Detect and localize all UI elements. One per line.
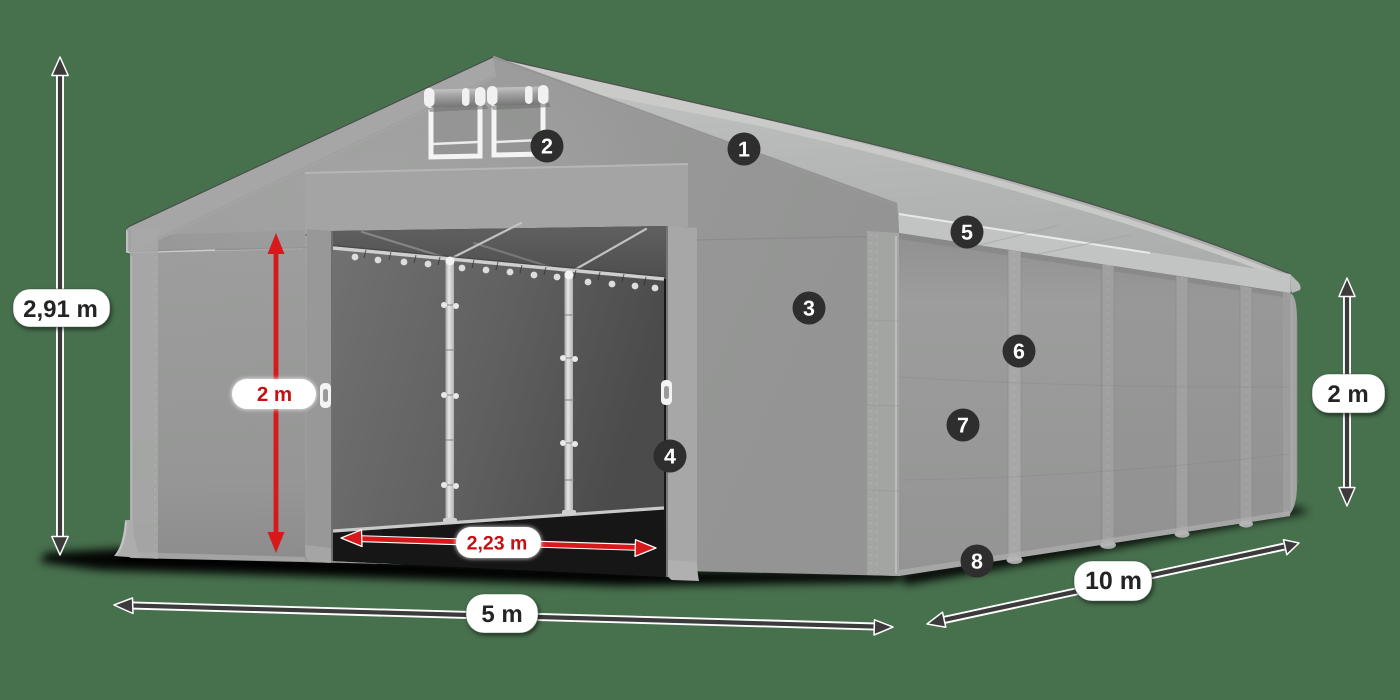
svg-text:3: 3 xyxy=(803,297,815,321)
svg-text:5: 5 xyxy=(961,221,973,245)
svg-text:2 m: 2 m xyxy=(1327,381,1368,408)
svg-text:2 m: 2 m xyxy=(257,383,292,406)
svg-text:2: 2 xyxy=(541,135,553,159)
svg-text:7: 7 xyxy=(957,414,969,438)
svg-text:6: 6 xyxy=(1013,340,1025,364)
svg-text:10 m: 10 m xyxy=(1085,567,1142,595)
svg-text:1: 1 xyxy=(738,138,750,162)
svg-text:2,23 m: 2,23 m xyxy=(467,533,528,555)
svg-text:5 m: 5 m xyxy=(481,601,522,628)
svg-text:2,91 m: 2,91 m xyxy=(23,296,98,323)
svg-text:4: 4 xyxy=(664,445,676,469)
svg-text:8: 8 xyxy=(971,550,983,574)
